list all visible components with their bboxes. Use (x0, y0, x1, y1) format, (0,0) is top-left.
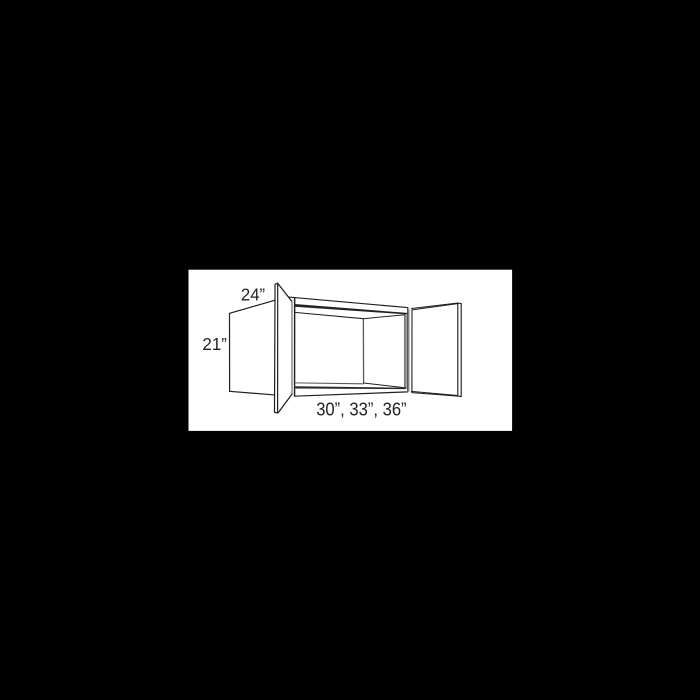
svg-text:24”: 24” (241, 285, 265, 305)
svg-text:21”: 21” (202, 334, 227, 354)
svg-text:30”, 33”, 36”: 30”, 33”, 36” (316, 398, 406, 419)
